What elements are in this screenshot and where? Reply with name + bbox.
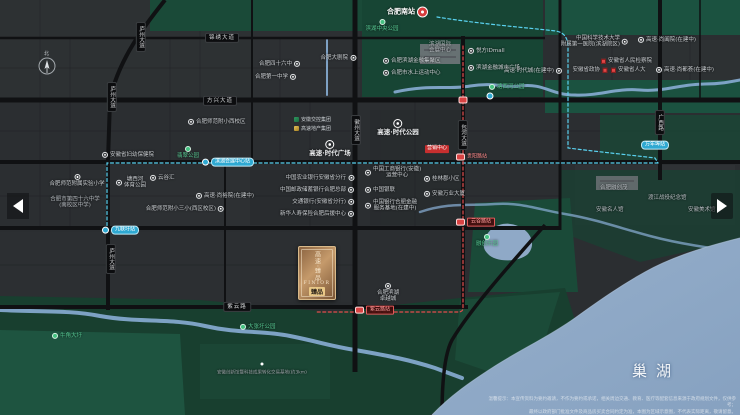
road-name-pill: 庐州大道 bbox=[106, 244, 116, 274]
legend-label: 安徽交控集团 bbox=[301, 116, 331, 123]
poi-label-text: 合肥大剧院 bbox=[320, 55, 348, 61]
poi-label: 高速·时代城(在建中) bbox=[504, 68, 562, 74]
place-label: 合肥融创茂 bbox=[600, 185, 628, 191]
metro-station-red-text: 贵阳路站 bbox=[467, 154, 487, 160]
park-label-text: 牛角大圩 bbox=[60, 333, 82, 339]
metro-station-red-text: 云谷路站 bbox=[467, 218, 495, 227]
poi-label-icon bbox=[188, 119, 194, 125]
arrow-left-icon bbox=[13, 199, 23, 213]
developer-logo-green-icon bbox=[294, 117, 299, 122]
metro-station-blue bbox=[487, 93, 494, 100]
poi-label-icon bbox=[350, 55, 356, 61]
poi-label: 中国农业银行安徽省分行 bbox=[285, 175, 354, 181]
disclaimer-line-1: 温馨提示：本宣传资料为要约邀请，不作为要约或承诺，相关周边交通、教育、医疗等配套… bbox=[486, 397, 736, 410]
metro-station-red-icon bbox=[355, 307, 364, 314]
project-name-vertical: 高速·臻品 bbox=[313, 251, 322, 282]
metro-station-blue-text: 滨湖会展中心站 bbox=[211, 158, 254, 167]
poi-label-text: 中国工商银行(安徽)运营中心 bbox=[373, 167, 421, 180]
park-label: 滨湖中央公园 bbox=[365, 19, 398, 32]
disclaimer-line-2: 最终以政府部门批准文件及商品房买卖合同约定为准，本图为区域示意图，不代表实际距离… bbox=[486, 410, 736, 415]
park-label-text: 塘西河公园 bbox=[497, 84, 525, 90]
park-label-text: 大张圩公园 bbox=[248, 324, 276, 330]
park-label: 翡翠公园 bbox=[177, 146, 199, 159]
poi-label-text: 交通银行(安徽省分行) bbox=[292, 199, 346, 205]
poi-label-icon bbox=[348, 175, 354, 181]
poi-label: 中国邮政储蓄银行合肥总部 bbox=[280, 187, 354, 193]
road-name-pill-text: 广西路 bbox=[655, 110, 665, 135]
park-label-icon bbox=[489, 84, 495, 90]
poi-label-icon bbox=[365, 170, 371, 176]
road-name-pill-text: 锦绣大道 bbox=[205, 33, 239, 43]
poi-label: 合肥滨湖金融集聚区 bbox=[383, 58, 441, 64]
metro-station-red: 紫云路站 bbox=[355, 306, 394, 315]
poi-label-icon bbox=[556, 68, 562, 74]
project-marker-label-icon bbox=[393, 119, 402, 128]
legend-label: 高速地产集团 bbox=[301, 125, 331, 132]
metro-station-blue-icon bbox=[202, 159, 209, 166]
poi-dot bbox=[261, 363, 264, 366]
carousel-next-button[interactable] bbox=[711, 193, 733, 219]
poi-label: 合肥市水上运动中心 bbox=[383, 70, 441, 76]
place-label: 合肥市第四十六中学(南校区中学) bbox=[50, 197, 100, 210]
government-label-icon bbox=[601, 59, 606, 64]
metro-station-red: 云谷路站 bbox=[456, 218, 495, 227]
poi-label-text: 中国农业银行安徽省分行 bbox=[285, 175, 346, 181]
poi-label-icon bbox=[468, 48, 474, 54]
road-name-pill: 广西路 bbox=[655, 110, 665, 135]
poi-label-text: 高速·尚阖院(在建中) bbox=[646, 37, 696, 43]
poi-label-icon bbox=[383, 58, 389, 64]
legend-row: 安徽交控集团 bbox=[294, 116, 331, 123]
poi-label-text: 悦方IDmall bbox=[476, 48, 505, 54]
poi-dot-icon bbox=[261, 363, 264, 366]
poi-label-icon bbox=[294, 61, 300, 67]
poi-label-text: 合肥师范附小西校区 bbox=[196, 119, 246, 125]
poi-label-text: 中国邮政储蓄银行合肥总部 bbox=[280, 187, 346, 193]
road-name-pill-text: 庐州大道 bbox=[107, 82, 117, 112]
poi-label-text: 合肥师范附属实验小学 bbox=[49, 181, 104, 187]
poi-label: 中国科学技术大学附属第一医院(滨湖院区) bbox=[561, 36, 628, 49]
poi-label-icon bbox=[468, 65, 474, 71]
project-marker-label-text: 高速·时代公园 bbox=[377, 129, 418, 136]
government-label-text: 安徽省政协 bbox=[572, 67, 600, 73]
park-label: 大张圩公园 bbox=[240, 324, 276, 330]
metro-station-red-icon bbox=[459, 97, 468, 104]
park-label-icon bbox=[484, 234, 490, 240]
poi-label-icon bbox=[424, 176, 430, 182]
developer-legend: 安徽交控集团 高速地产集团 bbox=[294, 116, 331, 132]
poi-label-icon bbox=[424, 191, 430, 197]
road-name-pill: 锦绣大道 bbox=[205, 33, 239, 43]
poi-label-icon bbox=[385, 283, 391, 289]
place-label: 安徽创新馆暨科技成果转化交易基地(约3km) bbox=[217, 370, 307, 375]
poi-label: 高速·尚阖院(在建中) bbox=[638, 37, 696, 43]
road-name-pill-text: 方兴大道 bbox=[203, 96, 237, 106]
project-marker-label-icon bbox=[325, 140, 334, 149]
poi-label: 高速·尚裕院(在建中) bbox=[196, 193, 254, 199]
poi-label-icon bbox=[150, 175, 156, 181]
poi-label: 悦方IDmall bbox=[468, 48, 505, 54]
railway-station-label: 合肥南站 bbox=[387, 7, 428, 18]
poi-label-icon bbox=[74, 174, 80, 180]
poi-label-text: 合肥第一中学 bbox=[255, 74, 288, 80]
metro-station-red-icon bbox=[456, 219, 465, 226]
government-label-icon bbox=[602, 68, 607, 73]
place-label: 安徽名人馆 bbox=[596, 207, 624, 213]
poi-label: 云谷汇 bbox=[150, 175, 175, 181]
poi-label: 合肥师范附小西校区 bbox=[188, 119, 246, 125]
carousel-prev-button[interactable] bbox=[7, 193, 29, 219]
poi-label-text: 高速·时代城(在建中) bbox=[504, 68, 554, 74]
government-label-text: 安徽省人民检察院 bbox=[608, 58, 652, 64]
compass-north-label: 北 bbox=[44, 50, 49, 57]
road-name-pill-text: 庐州大道 bbox=[106, 244, 116, 274]
poi-label-icon bbox=[348, 199, 354, 205]
project-marker-label-text: 高速·时代广场 bbox=[309, 150, 350, 157]
government-label-icon bbox=[611, 68, 616, 73]
poi-label-icon bbox=[348, 187, 354, 193]
poi-label: 安徽万业大厦 bbox=[424, 191, 465, 197]
legend-row: 高速地产集团 bbox=[294, 125, 331, 132]
poi-label-icon bbox=[656, 67, 662, 73]
poi-label-text: 合肥四十六中 bbox=[259, 61, 292, 67]
poi-label-icon bbox=[116, 180, 122, 186]
park-label-text: 翡翠公园 bbox=[177, 153, 199, 159]
metro-station-blue: 滨湖会展中心站 bbox=[202, 158, 254, 167]
poi-label: 中国银行合肥金融服务基地(在建中) bbox=[365, 200, 417, 213]
arrow-right-icon bbox=[717, 199, 727, 213]
poi-label: 合肥四十六中 bbox=[259, 61, 300, 67]
poi-label: 合肥第一中学 bbox=[255, 74, 296, 80]
poi-label-text: 云谷汇 bbox=[158, 175, 175, 181]
railway-station-label-text: 合肥南站 bbox=[387, 8, 415, 16]
poi-label: 高速·尚都荟(在建中) bbox=[656, 67, 714, 73]
road-name-pill: 紫云路 bbox=[223, 302, 251, 312]
poi-label: 合肥师范附属实验小学 bbox=[49, 174, 104, 187]
poi-label-icon bbox=[365, 187, 371, 193]
project-marker-label: 高速·时代公园 bbox=[377, 119, 418, 136]
park-label: 塘西河公园 bbox=[489, 84, 525, 90]
poi-label: 桂林郡小区 bbox=[424, 176, 460, 182]
poi-label-icon bbox=[365, 203, 371, 209]
place-label-text: 滨湖国际会展中心 bbox=[429, 42, 451, 55]
poi-label-icon bbox=[383, 70, 389, 76]
metro-station-red bbox=[459, 97, 468, 104]
poi-label-text: 合肥滨湖金融集聚区 bbox=[391, 58, 441, 64]
map-disclaimer: 温馨提示：本宣传资料为要约邀请，不作为要约或承诺，相关周边交通、教育、医疗等配套… bbox=[486, 397, 736, 415]
metro-station-blue-text: 万年埠站 bbox=[641, 141, 669, 150]
developer-logo-gold-icon bbox=[294, 126, 299, 131]
poi-label: 中国银联 bbox=[365, 187, 395, 193]
lake-name: 巢湖 bbox=[632, 360, 680, 381]
poi-label-icon bbox=[348, 211, 354, 217]
metro-station-red-text: 紫云路站 bbox=[366, 306, 394, 315]
poi-label-text: 塘西河体育公园 bbox=[124, 177, 146, 190]
place-label-text: 合肥市第四十六中学(南校区中学) bbox=[50, 197, 100, 210]
poi-label: 合肥滨湖卓越城 bbox=[377, 283, 399, 303]
road-name-pill: 庐州大道 bbox=[107, 82, 117, 112]
poi-label: 塘西河体育公园 bbox=[116, 177, 146, 190]
poi-label-text: 中国科学技术大学附属第一医院(滨湖院区) bbox=[561, 36, 620, 49]
road-name-pill-text: 徽州大道 bbox=[351, 115, 361, 145]
poi-label: 合肥师范附小三小(西区校区) bbox=[146, 206, 224, 212]
poi-label-text: 高速·尚都荟(在建中) bbox=[664, 67, 714, 73]
metro-station-blue-icon bbox=[102, 227, 109, 234]
place-label: 滨湖国际会展中心 bbox=[429, 42, 451, 55]
poi-label-icon bbox=[196, 193, 202, 199]
poi-label: 合肥大剧院 bbox=[320, 55, 356, 61]
poi-label-text: 安徽万业大厦 bbox=[432, 191, 465, 197]
park-label: 融创乐园 bbox=[476, 234, 498, 247]
park-label-text: 滨湖中央公园 bbox=[365, 26, 398, 32]
poi-label-text: 中国银行合肥金融服务基地(在建中) bbox=[373, 200, 417, 213]
park-label-text: 融创乐园 bbox=[476, 241, 498, 247]
government-label: 安徽省人民检察院 bbox=[601, 58, 652, 64]
poi-label-text: 桂林郡小区 bbox=[432, 176, 460, 182]
park-label-icon bbox=[52, 333, 58, 339]
railway-station-label-icon bbox=[417, 7, 428, 18]
road-name-pill-text: 紫云路 bbox=[223, 302, 251, 312]
poi-label-text: 新华人寿保险合肥后援中心 bbox=[280, 211, 346, 217]
government-label: 安徽省政协 bbox=[572, 67, 607, 73]
poi-label-text: 高速·尚裕院(在建中) bbox=[204, 193, 254, 199]
government-label: 安徽省人大 bbox=[611, 67, 646, 73]
poi-label-text: 合肥滨湖卓越城 bbox=[377, 290, 399, 303]
park-label-icon bbox=[379, 19, 385, 25]
road-name-pill-text: 庐州大道 bbox=[136, 22, 146, 52]
sales-center-badge-text: 营销中心 bbox=[425, 145, 449, 153]
metro-station-blue: 万年埠站 bbox=[641, 141, 669, 150]
map-labels-layer: 合肥南站滨湖中央公园塘西河公园翡翠公园融创乐园大张圩公园牛角大圩高速·时代广场高… bbox=[0, 0, 740, 415]
poi-label-icon bbox=[638, 37, 644, 43]
sales-center-badge: 营销中心 bbox=[425, 145, 449, 153]
project-marker-label: 高速·时代广场 bbox=[309, 140, 350, 157]
park-label-icon bbox=[185, 146, 191, 152]
poi-label-icon bbox=[290, 74, 296, 80]
poi-label: 中国工商银行(安徽)运营中心 bbox=[365, 167, 421, 180]
poi-label: 新华人寿保险合肥后援中心 bbox=[280, 211, 354, 217]
metro-station-blue: 九联圩站 bbox=[102, 226, 139, 235]
place-label-text: 合肥融创茂 bbox=[600, 185, 628, 191]
metro-station-red: 贵阳路站 bbox=[456, 154, 487, 161]
place-label-text: 安徽名人馆 bbox=[596, 207, 624, 213]
location-map: 合肥南站滨湖中央公园塘西河公园翡翠公园融创乐园大张圩公园牛角大圩高速·时代广场高… bbox=[0, 0, 740, 415]
metro-station-red-icon bbox=[456, 154, 465, 161]
government-label-text: 安徽省人大 bbox=[618, 67, 646, 73]
park-label: 牛角大圩 bbox=[52, 333, 82, 339]
place-label-text: 渡江战役纪念馆 bbox=[648, 195, 687, 201]
road-name-pill: 包河大道 bbox=[458, 120, 468, 150]
poi-label-text: 合肥市水上运动中心 bbox=[391, 70, 441, 76]
road-name-pill: 庐州大道 bbox=[136, 22, 146, 52]
poi-label-text: 中国银联 bbox=[373, 187, 395, 193]
metro-station-blue-text: 九联圩站 bbox=[111, 226, 139, 235]
road-name-pill: 徽州大道 bbox=[351, 115, 361, 145]
road-name-pill: 方兴大道 bbox=[203, 96, 237, 106]
place-label: 渡江战役纪念馆 bbox=[648, 195, 687, 201]
poi-label-icon bbox=[622, 39, 628, 45]
poi-label: 安徽省妇幼保健院 bbox=[102, 152, 154, 158]
road-name-pill-text: 包河大道 bbox=[458, 120, 468, 150]
place-label-text: 安徽创新馆暨科技成果转化交易基地(约3km) bbox=[217, 370, 307, 375]
project-card: 高速·臻品 FINIOR 臻品 bbox=[298, 246, 336, 300]
poi-label-text: 安徽省妇幼保健院 bbox=[110, 152, 154, 158]
poi-label-icon bbox=[102, 152, 108, 158]
poi-label: 交通银行(安徽省分行) bbox=[292, 199, 354, 205]
metro-station-blue-icon bbox=[487, 93, 494, 100]
poi-label-text: 合肥师范附小三小(西区校区) bbox=[146, 206, 216, 212]
poi-label-icon bbox=[218, 206, 224, 212]
park-label-icon bbox=[240, 324, 246, 330]
